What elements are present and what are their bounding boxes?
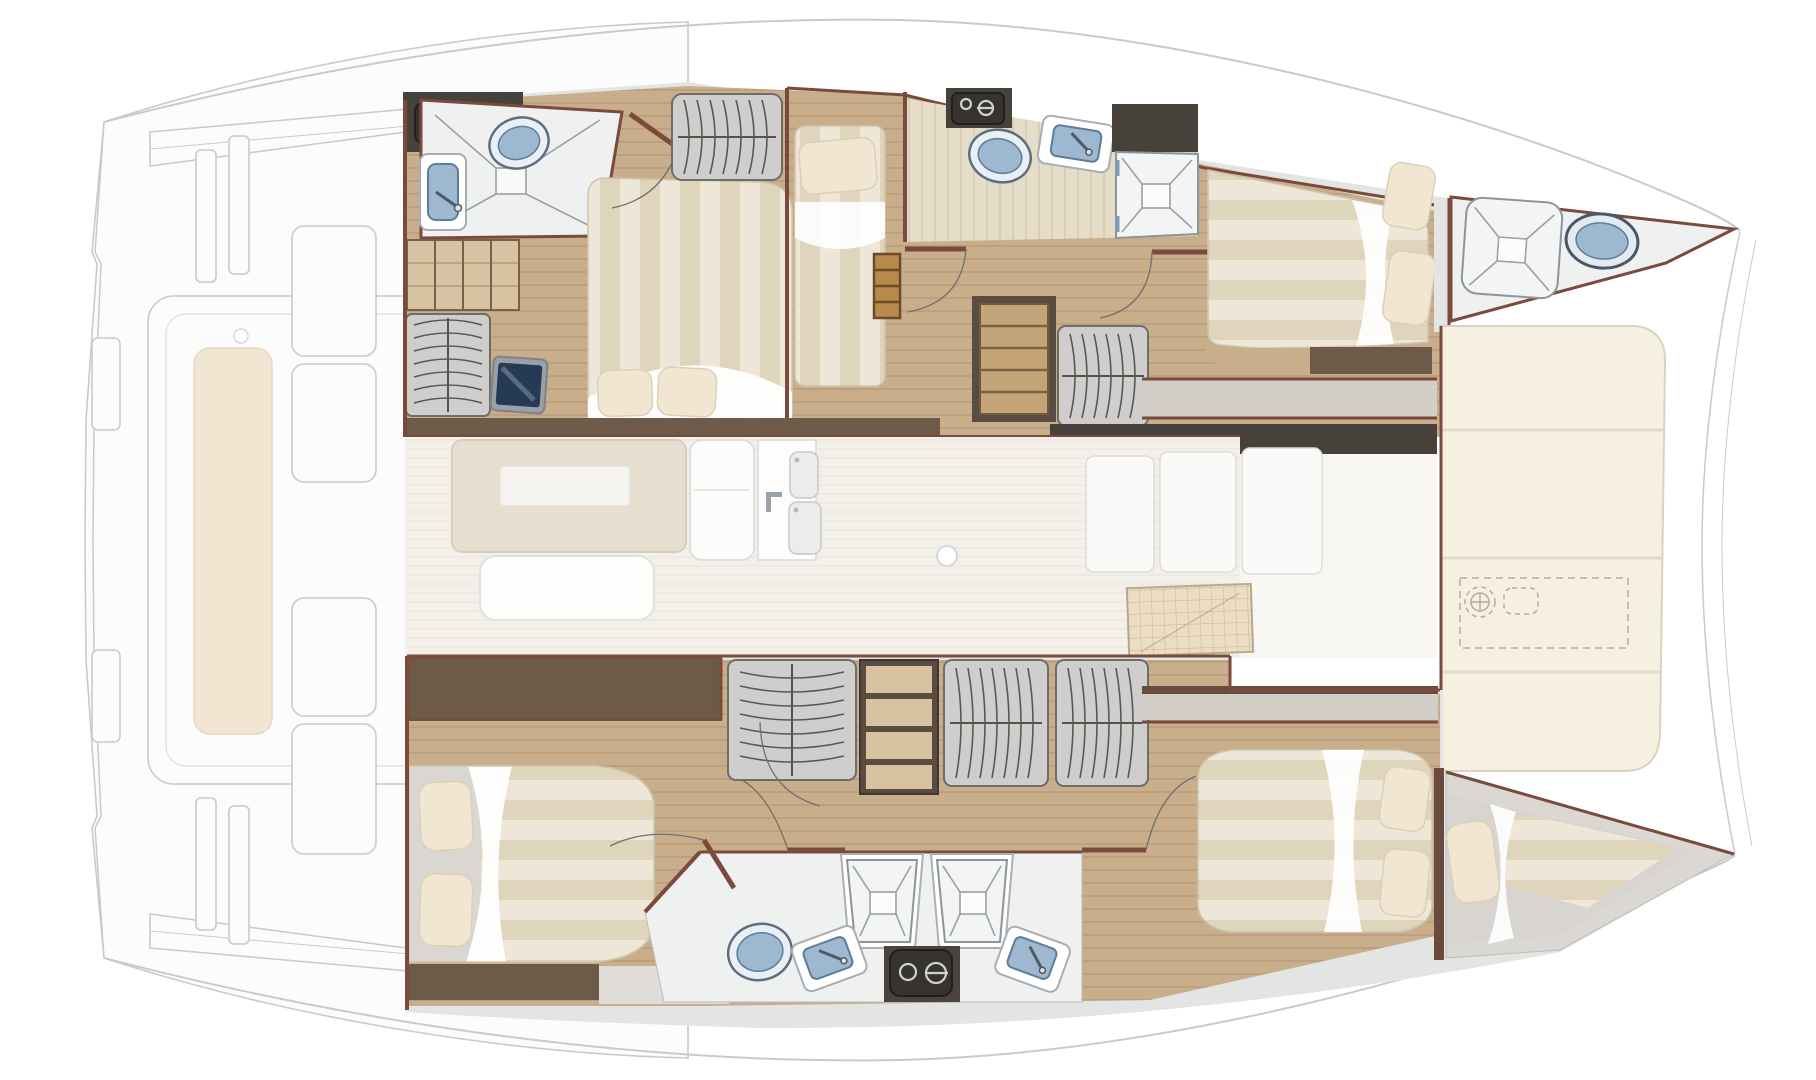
- sink-icon: [420, 154, 466, 230]
- bow-inner-line-1: [1702, 232, 1740, 854]
- steps: [980, 304, 1048, 414]
- single-bed: [795, 126, 885, 386]
- wardrobe-hangers: [944, 660, 1048, 786]
- wardrobe-hangers: [1058, 326, 1148, 426]
- cockpit-seat: [292, 724, 376, 854]
- pillow: [419, 873, 473, 947]
- under-bed-locker: [407, 964, 599, 1000]
- galley-unit-ghost: [1160, 452, 1236, 572]
- shower-tray: [1116, 152, 1198, 238]
- sink-icon: [1037, 115, 1116, 174]
- ladder: [874, 254, 900, 318]
- galley-unit-ghost: [1242, 448, 1322, 574]
- saloon-sofa: [690, 440, 754, 560]
- catamaran-floorplan: [0, 0, 1816, 1080]
- side-locker: [1142, 380, 1437, 418]
- cockpit-knob: [234, 329, 248, 343]
- pillow: [798, 137, 878, 195]
- double-bed: [1198, 750, 1432, 932]
- sunpad-block: [1441, 326, 1665, 771]
- double-bed: [409, 766, 654, 962]
- under-bed-band: [405, 418, 940, 437]
- shower-tray: [1461, 197, 1563, 299]
- cockpit-post: [229, 136, 249, 274]
- cockpit-bench-cushion: [194, 348, 272, 734]
- bow-walkway: [1434, 200, 1449, 332]
- pillow: [1379, 848, 1432, 918]
- saloon: [405, 437, 1437, 658]
- forepeak-head: [1451, 197, 1734, 321]
- pillow: [1378, 765, 1432, 833]
- bow-berth: [1434, 768, 1734, 960]
- cockpit-post: [196, 150, 216, 282]
- aft-locker-band: [407, 658, 721, 720]
- side-locker: [1142, 694, 1438, 720]
- shelves: [407, 240, 519, 310]
- transom-step: [92, 650, 120, 742]
- bed-sheet: [795, 202, 885, 249]
- cockpit-post: [196, 798, 216, 930]
- pillow: [1381, 249, 1437, 327]
- tv-screen-icon: [490, 356, 548, 414]
- cockpit-seat: [292, 364, 376, 482]
- wardrobe-hangers: [406, 314, 490, 416]
- saloon-bench: [480, 556, 654, 620]
- owner-double-bed: [588, 178, 792, 420]
- transom-step: [92, 338, 120, 430]
- cockpit-seat: [292, 598, 376, 716]
- shelves: [860, 660, 938, 794]
- cockpit-post: [229, 806, 249, 944]
- table-knob: [937, 546, 957, 566]
- floorplan-canvas: Catamaran yacht interior layout — top vi…: [0, 0, 1816, 1080]
- locker-block: [1112, 104, 1198, 152]
- wardrobe-hangers: [728, 660, 856, 780]
- table-panel: [500, 466, 630, 506]
- galley-sink: [790, 452, 818, 498]
- washing-machine-icon: [890, 950, 952, 996]
- wardrobe-hangers: [672, 94, 782, 180]
- pillow: [657, 367, 717, 418]
- grid-hatch: [1127, 584, 1253, 656]
- foredeck: [1441, 326, 1665, 771]
- wardrobe-hangers: [1056, 660, 1148, 786]
- storage-row: [728, 660, 1148, 794]
- bow-inner-line-2: [1722, 240, 1756, 846]
- galley-unit-ghost: [1086, 456, 1154, 572]
- entry-door-module: [758, 440, 821, 560]
- pillow: [418, 781, 473, 852]
- under-bed-locker: [1310, 347, 1432, 374]
- berth-bulkhead: [1434, 768, 1444, 960]
- shower-tray: [931, 854, 1013, 948]
- cockpit-seat: [292, 226, 376, 356]
- washing-machine-icon: [952, 93, 1004, 124]
- pillow: [597, 369, 653, 417]
